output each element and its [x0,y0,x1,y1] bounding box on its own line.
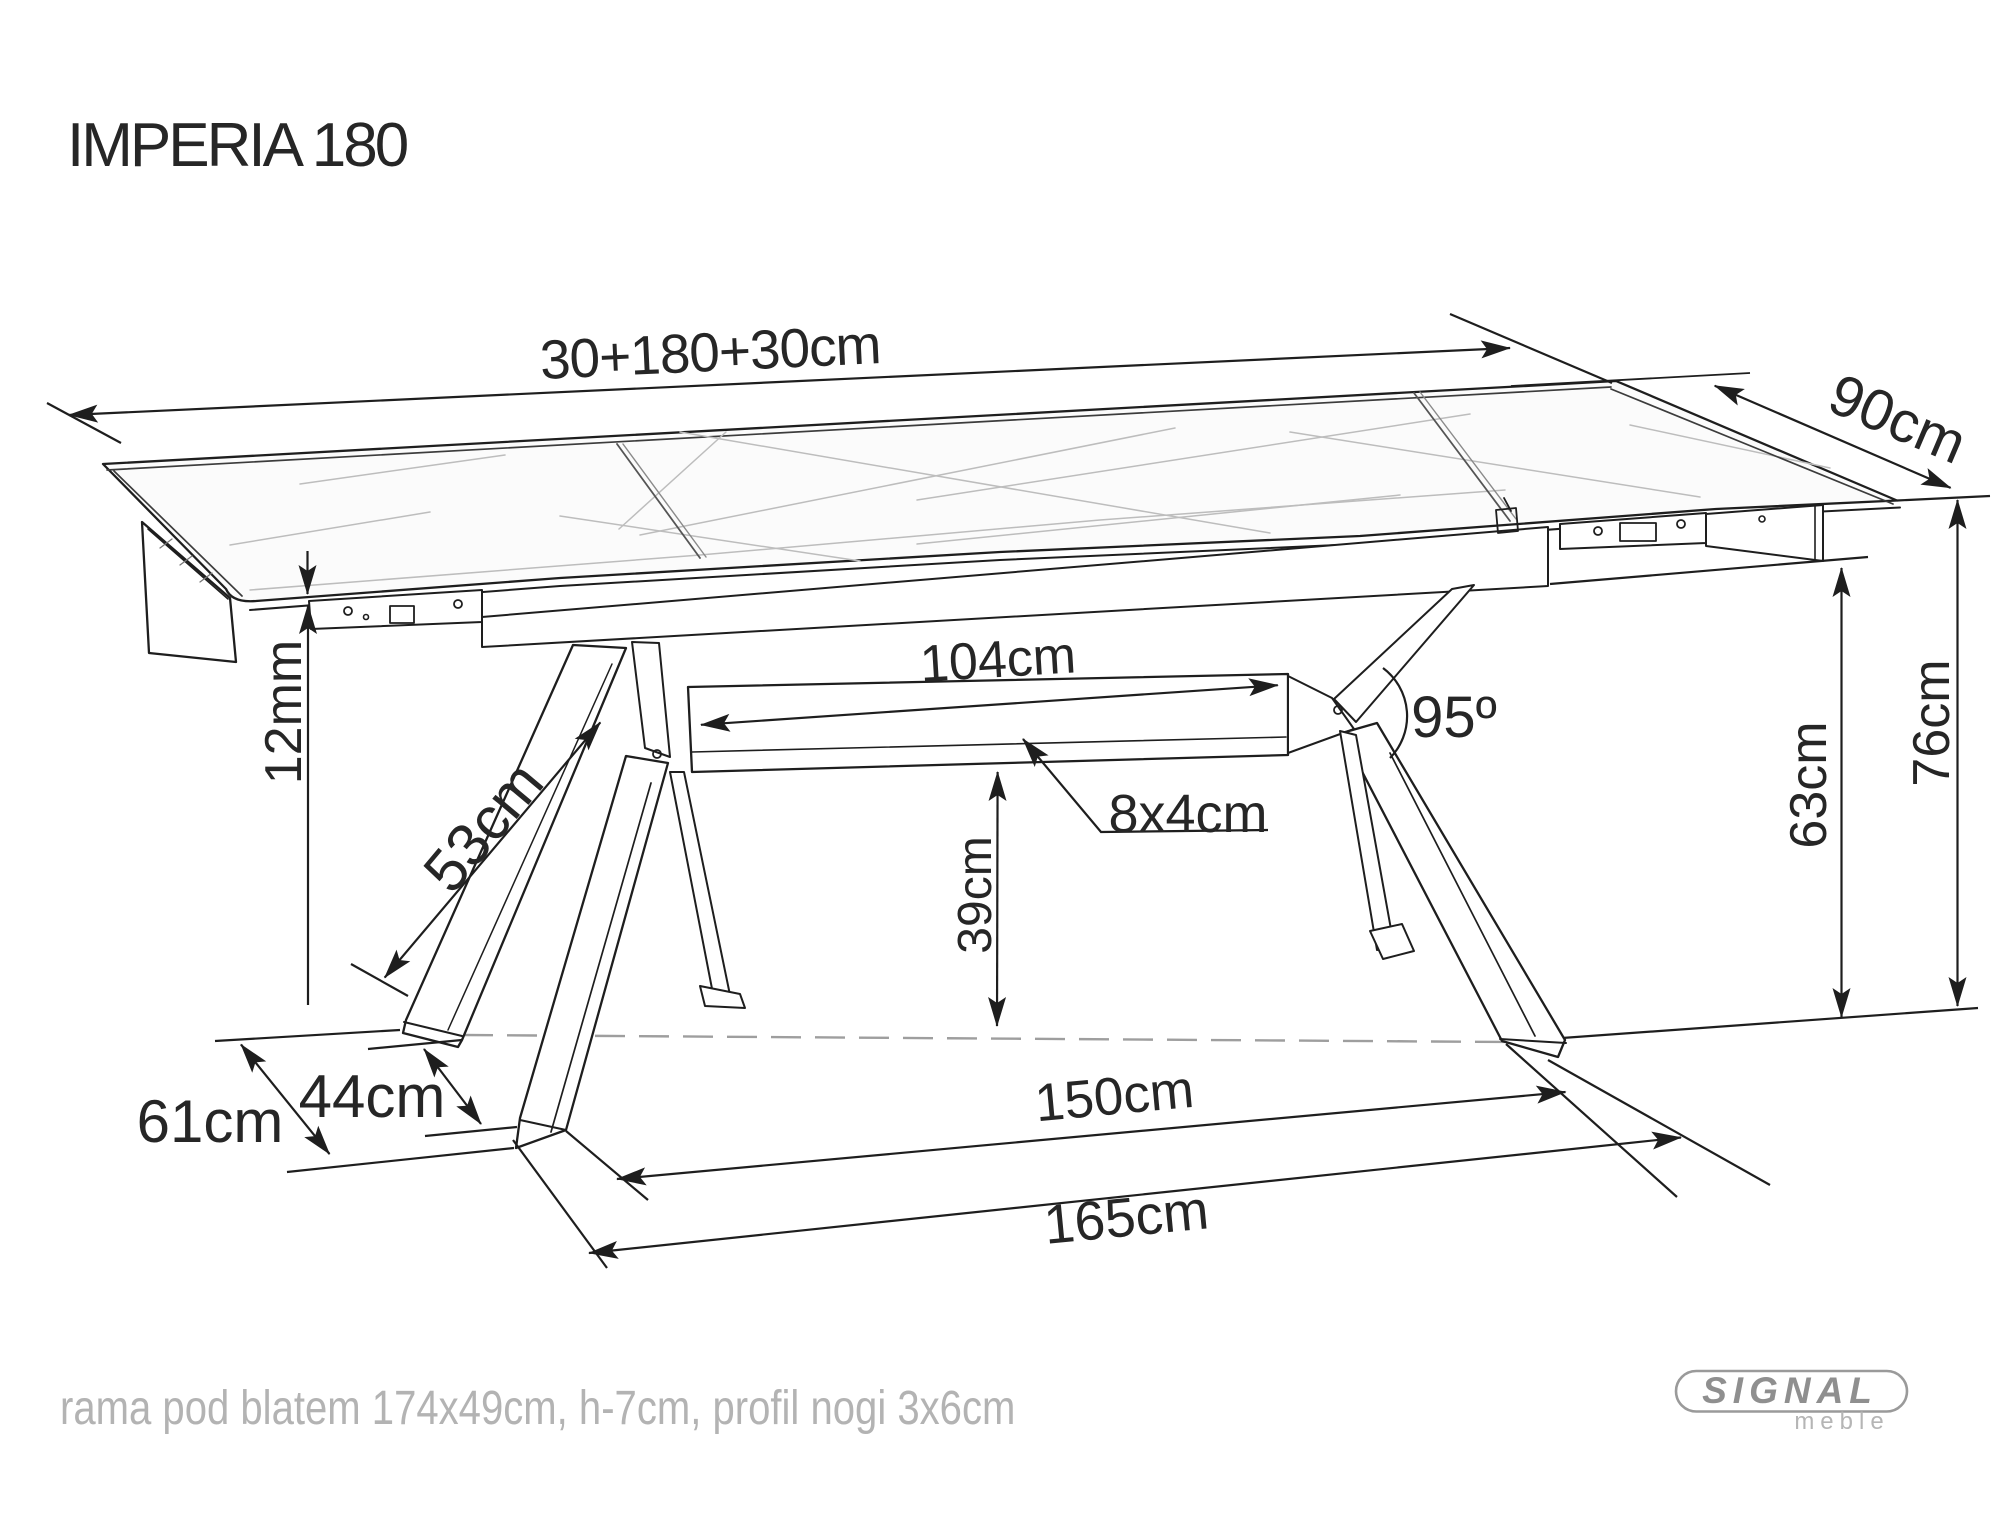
svg-text:61cm: 61cm [137,1088,284,1155]
svg-text:150cm: 150cm [1032,1060,1196,1133]
svg-text:rama pod blatem 174x49cm, h-7c: rama pod blatem 174x49cm, h-7cm, profil … [60,1382,1015,1435]
svg-text:meble: meble [1794,1408,1889,1435]
svg-text:IMPERIA 180: IMPERIA 180 [67,111,408,180]
svg-text:SIGNAL: SIGNAL [1702,1370,1878,1411]
svg-text:12mm: 12mm [255,640,313,784]
svg-text:165cm: 165cm [1041,1178,1211,1256]
svg-text:76cm: 76cm [1903,659,1961,786]
svg-text:95º: 95º [1411,685,1497,750]
svg-text:63cm: 63cm [1780,721,1838,848]
svg-text:8x4cm: 8x4cm [1108,784,1267,844]
svg-text:39cm: 39cm [949,836,1002,953]
svg-text:104cm: 104cm [918,626,1077,693]
svg-text:90cm: 90cm [1820,361,1976,476]
svg-text:44cm: 44cm [299,1063,446,1130]
